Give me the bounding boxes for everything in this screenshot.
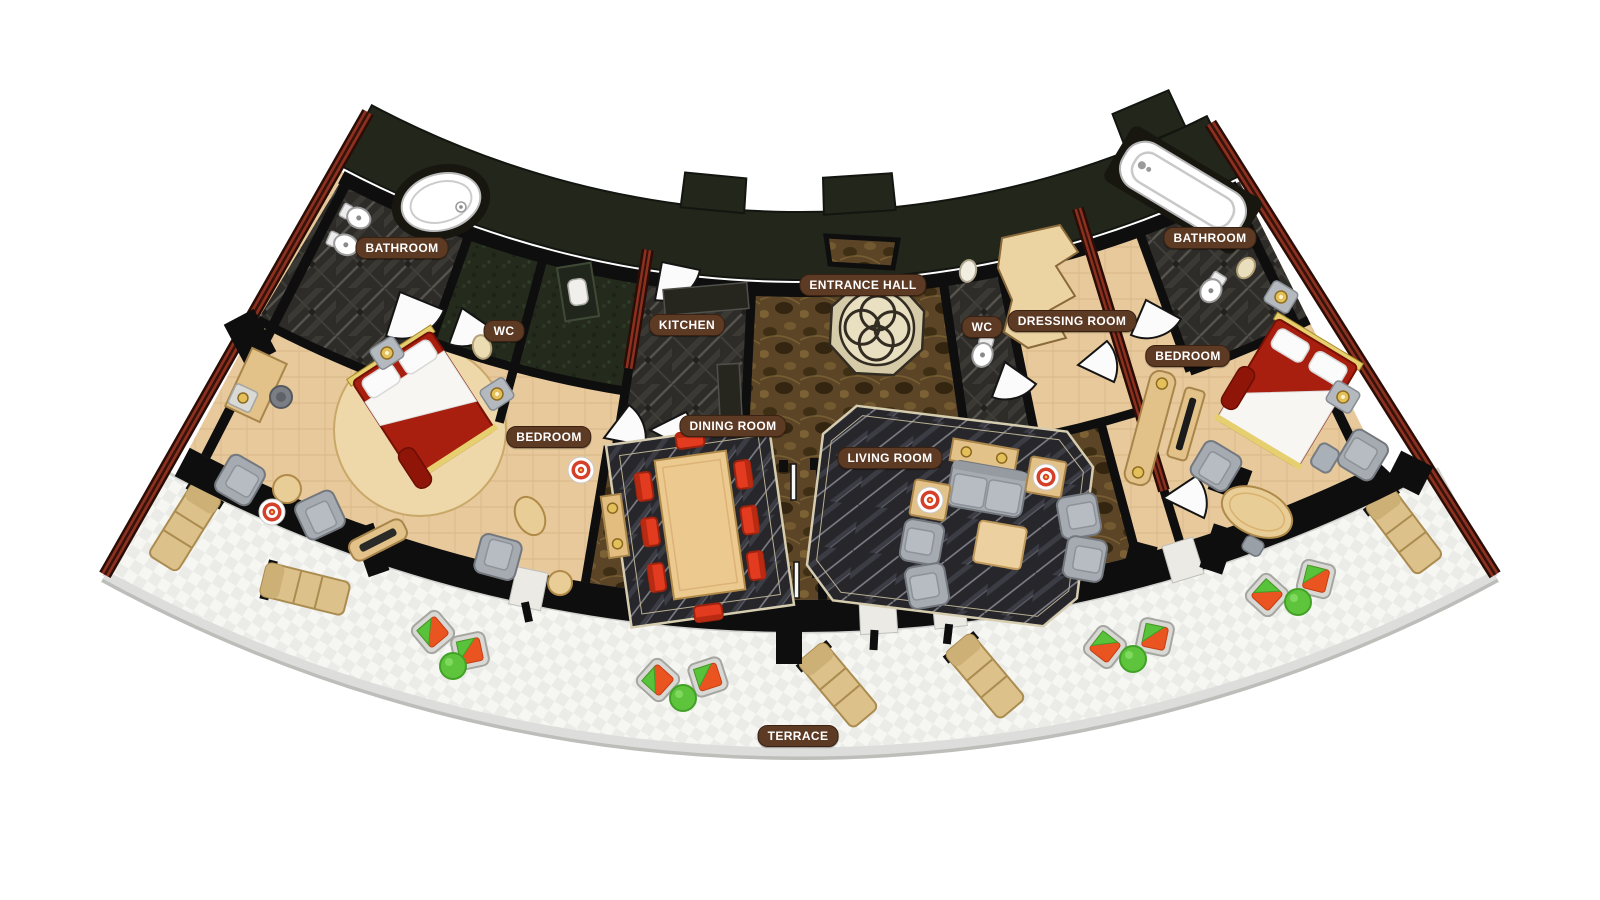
dining-set xyxy=(606,421,795,632)
terrace-table xyxy=(440,653,466,679)
armchair xyxy=(1056,492,1103,540)
terrace-table xyxy=(1120,646,1146,672)
room-label-dining-room: DINING ROOM xyxy=(679,415,786,437)
room-label-entrance-hall: ENTRANCE HALL xyxy=(799,274,926,296)
room-label-bedroom-left: BEDROOM xyxy=(506,426,591,448)
terrace-table xyxy=(1285,589,1311,615)
top-band-bump xyxy=(823,173,896,215)
entrance-vestibule xyxy=(826,236,898,268)
room-label-dressing-room: DRESSING ROOM xyxy=(1008,310,1137,332)
door-leaf xyxy=(791,464,796,500)
door-leaf xyxy=(794,562,799,598)
office-chair xyxy=(270,386,292,408)
floor-plan-stage: BATHROOM WC KITCHEN ENTRANCE HALL WC DRE… xyxy=(0,0,1600,900)
room-label-kitchen: KITCHEN xyxy=(649,314,725,336)
room-label-bathroom-right: BATHROOM xyxy=(1164,227,1257,249)
armchair xyxy=(1062,535,1109,583)
top-band-bump xyxy=(681,173,747,214)
counter-sink xyxy=(557,263,599,322)
terrace-table xyxy=(670,685,696,711)
room-label-wc-left: WC xyxy=(484,320,525,342)
room-label-living-room: LIVING ROOM xyxy=(837,447,942,469)
round-rug xyxy=(568,457,594,483)
armchair xyxy=(904,562,951,610)
room-label-bedroom-right: BEDROOM xyxy=(1145,345,1230,367)
round-rug xyxy=(259,499,285,525)
side-table-round xyxy=(273,475,301,503)
dining-furniture xyxy=(601,421,795,632)
room-label-terrace: TERRACE xyxy=(758,725,839,747)
pillar xyxy=(776,608,802,664)
terrace-door-tab xyxy=(869,630,878,650)
side-table-target xyxy=(1025,456,1067,498)
armchair xyxy=(899,518,946,566)
living-furniture xyxy=(803,402,1108,630)
side-table-round xyxy=(548,571,572,595)
room-label-bathroom-left: BATHROOM xyxy=(356,237,449,259)
coffee-table xyxy=(973,520,1028,570)
floor-plan-drawing xyxy=(0,0,1600,900)
side-table-target xyxy=(909,479,951,521)
room-label-wc-right: WC xyxy=(962,316,1003,338)
